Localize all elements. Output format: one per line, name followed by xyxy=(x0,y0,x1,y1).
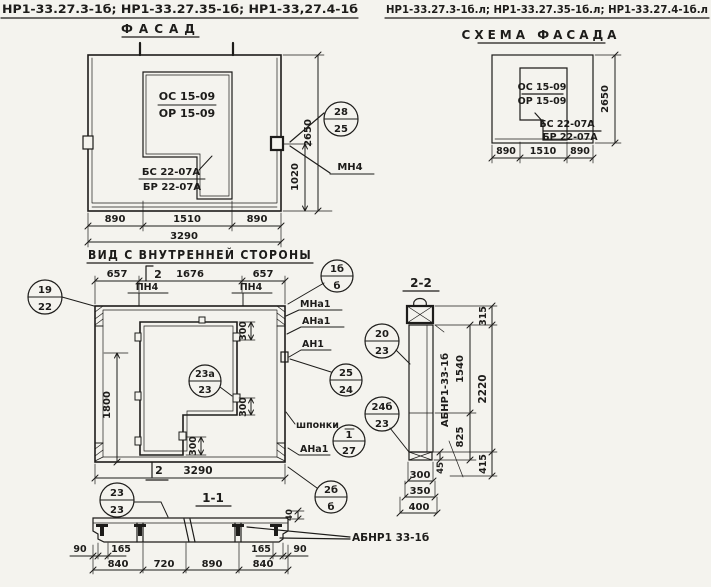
inner-circle-20-bottom: 23 xyxy=(375,346,389,357)
facade-dim-total: 3290 xyxy=(170,231,198,242)
section2-bottom-block-cross xyxy=(409,452,432,460)
schema-dim-mid: 1510 xyxy=(530,146,557,157)
inner-circle-23a-top: 23а xyxy=(195,369,215,380)
inner-circle-1-bottom: 27 xyxy=(342,446,356,457)
section1-anchor-marks xyxy=(96,524,282,536)
key-mark xyxy=(199,317,205,323)
section2-dim-415: 415 xyxy=(478,454,489,474)
inner-circle-24b-bottom: 23 xyxy=(375,419,389,430)
facade-block-mark-top: БС 22-07А xyxy=(142,167,200,178)
section1-dim-165-left: 165 xyxy=(111,544,131,555)
section1-dim-840-left: 840 xyxy=(108,559,129,570)
section1-dim-840-right: 840 xyxy=(253,559,274,570)
inner-dim-key-right: 300 xyxy=(238,397,249,417)
inner-circle-2b-lines xyxy=(288,467,347,497)
section2-outer-dimension-line xyxy=(489,303,495,479)
section2-title: 2-2 xyxy=(410,276,432,290)
section1-panel-label-leaders xyxy=(247,527,350,539)
panel-drawing-svg: НР1-33.27.3-1б; НР1-33.27.35-1б; НР1-33,… xyxy=(0,0,711,587)
inner-dim-top-right: 657 xyxy=(253,269,274,280)
facade-opening-mark-bottom: ОР 15-09 xyxy=(159,107,215,120)
section1-dim-90-left: 90 xyxy=(73,544,87,555)
inner-circle-19-top: 19 xyxy=(38,285,52,296)
inner-pin-label-left: ПН4 xyxy=(136,282,159,293)
key-mark xyxy=(135,333,141,341)
schema-view: ОС 15-09 ОР 15-09 БС 22-07А БР 22-07А 89… xyxy=(489,52,621,163)
schema-height-dimension-line xyxy=(612,52,618,146)
key-mark xyxy=(135,437,141,445)
section1-dim-40: 40 xyxy=(285,509,295,521)
section2-dim-825: 825 xyxy=(455,427,466,448)
facade-dim-right: 890 xyxy=(247,214,268,225)
inner-dim-side: 1800 xyxy=(102,391,113,419)
anchor-mark xyxy=(232,524,244,536)
section2-dim-2220: 2220 xyxy=(477,374,489,403)
title-facade: ФАСАД xyxy=(121,22,201,36)
inner-circle-24b-top: 24б xyxy=(372,401,393,413)
section1-panel-label: АБНР1 33-1б xyxy=(352,532,429,544)
inner-pin-left-mark xyxy=(128,293,168,306)
facade-dim-anchor: 1020 xyxy=(290,163,301,191)
schema-block-mark-bottom: БР 22-07А xyxy=(542,132,598,143)
inner-circle-25-bottom: 24 xyxy=(339,385,353,396)
section2-dim-400: 400 xyxy=(409,502,430,513)
section2-dim-300: 300 xyxy=(410,470,431,481)
inner-circle-25-top: 25 xyxy=(339,368,353,379)
schema-dim-left: 890 xyxy=(496,146,516,157)
inner-label-ana1-top: АНа1 xyxy=(302,316,330,327)
schema-opening-mark-bottom: ОР 15-09 xyxy=(518,96,567,107)
inner-dim-key-bottom: 300 xyxy=(188,436,199,456)
inner-circle-19-bottom: 22 xyxy=(38,302,52,313)
inner-dim-top-left: 657 xyxy=(107,269,128,280)
schema-dim-right: 890 xyxy=(570,146,590,157)
section1-dim-720: 720 xyxy=(154,559,175,570)
inner-circle-2b-top: 2б xyxy=(324,484,338,496)
section2-body-inner-lines xyxy=(409,325,433,452)
section1-dim-890: 890 xyxy=(202,559,223,570)
inner-cut-mark-top: 2 xyxy=(154,268,162,281)
section2-dim-350: 350 xyxy=(410,486,431,497)
section1-ref-circle-top: 23 xyxy=(110,488,124,499)
title-right-codes: НР1-33.27.3-1б.л; НР1-33.27.35-1б.л; НР1… xyxy=(386,4,708,16)
key-mark xyxy=(179,432,186,440)
facade-top-pin-marks xyxy=(140,43,233,55)
inner-dim-key-top: 300 xyxy=(238,321,249,341)
section2-dim-315: 315 xyxy=(478,306,489,326)
section2-body xyxy=(409,325,433,452)
section2-dim-1540: 1540 xyxy=(455,355,466,383)
facade-dim-left: 890 xyxy=(105,214,126,225)
inner-circle-1-top: 1 xyxy=(346,430,353,441)
section1-40-dimension-line xyxy=(295,508,301,522)
section1-title: 1-1 xyxy=(202,491,224,505)
inner-label-mna1: МНа1 xyxy=(300,299,330,310)
schema-dim-height: 2650 xyxy=(600,85,611,113)
section1-strip-ribs xyxy=(137,519,241,542)
section1-dim-165-right: 165 xyxy=(251,544,271,555)
sheet-titles: НР1-33.27.3-1б; НР1-33.27.35-1б; НР1-33,… xyxy=(1,2,709,43)
facade-height-dimension-line xyxy=(315,52,321,214)
facade-view: ОС 15-09 ОР 15-09 БС 22-07А БР 22-07А 26… xyxy=(83,43,374,247)
section1-dim-90-right: 90 xyxy=(293,544,307,555)
inner-label-an1: АН1 xyxy=(302,339,324,350)
inner-circle-2b-bottom: б xyxy=(328,501,335,513)
title-schema: СХЕМА ФАСАДА xyxy=(462,28,621,42)
inner-circle-20-top: 20 xyxy=(375,329,389,340)
section1-ref-circle-bottom: 23 xyxy=(110,505,124,516)
section2-dim-45: 45 xyxy=(436,462,446,474)
schema-block-mark-top: БС 22-07А xyxy=(539,119,595,130)
section2-panel-label: АБНР1-33-1б xyxy=(439,353,451,427)
facade-ref-circle-bottom: 25 xyxy=(334,124,348,135)
inner-label-ana1-bottom: АНа1 xyxy=(300,444,328,455)
inner-dim-top-mid: 1676 xyxy=(176,269,204,280)
inner-circle-1b-top: 1б xyxy=(330,263,344,275)
inner-pin-right-mark xyxy=(232,293,272,306)
title-inner-view: ВИД С ВНУТРЕННЕЙ СТОРОНЫ xyxy=(88,247,312,262)
facade-block-mark-bottom: БР 22-07А xyxy=(143,182,201,193)
facade-dim-mid: 1510 xyxy=(173,214,201,225)
section2-45-dimension-line xyxy=(437,449,443,463)
inner-cut-mark-top-line xyxy=(146,266,153,281)
drawing-sheet: НР1-33.27.3-1б; НР1-33.27.35-1б; НР1-33,… xyxy=(0,0,711,587)
inner-keys-label-leader xyxy=(286,412,295,424)
section-2-2: 2-2 1540 825 315 2220 415 45 300 350 400… xyxy=(397,276,497,516)
key-mark xyxy=(135,392,141,400)
inner-label-ana1-top-lines xyxy=(287,327,344,334)
facade-anchor-dimension-line xyxy=(303,144,308,211)
facade-right-anchor xyxy=(271,137,283,150)
facade-ref-circle-top: 28 xyxy=(334,107,348,118)
anchor-mark xyxy=(134,524,146,536)
inner-dim-total: 3290 xyxy=(183,465,212,477)
inner-circle-23a-bottom: 23 xyxy=(198,385,211,396)
section2-inner-dimension-line xyxy=(467,322,473,463)
inner-cut-mark-bottom: 2 xyxy=(155,464,163,477)
inner-pin-label-right: ПН4 xyxy=(240,282,263,293)
section2-lifting-loop xyxy=(414,299,427,307)
title-left-codes: НР1-33.27.3-1б; НР1-33.27.35-1б; НР1-33,… xyxy=(2,2,358,16)
inner-label-an1-lines xyxy=(289,350,331,357)
facade-opening-mark-top: ОС 15-09 xyxy=(159,90,215,103)
inner-view: ВИД С ВНУТРЕННЕЙ СТОРОНЫ 657 1676 657 2 … xyxy=(28,247,410,513)
inner-keys-label: шпонки xyxy=(296,420,339,431)
schema-opening-mark-top: ОС 15-09 xyxy=(518,82,567,93)
facade-left-anchor xyxy=(83,136,93,149)
inner-circle-1b-bottom: б xyxy=(334,280,341,292)
facade-anchor-label: МН4 xyxy=(337,162,362,173)
section-1-1: 1-1 40 23 23 АБНР1 33-1б 90 165 165 90 8… xyxy=(70,483,429,574)
